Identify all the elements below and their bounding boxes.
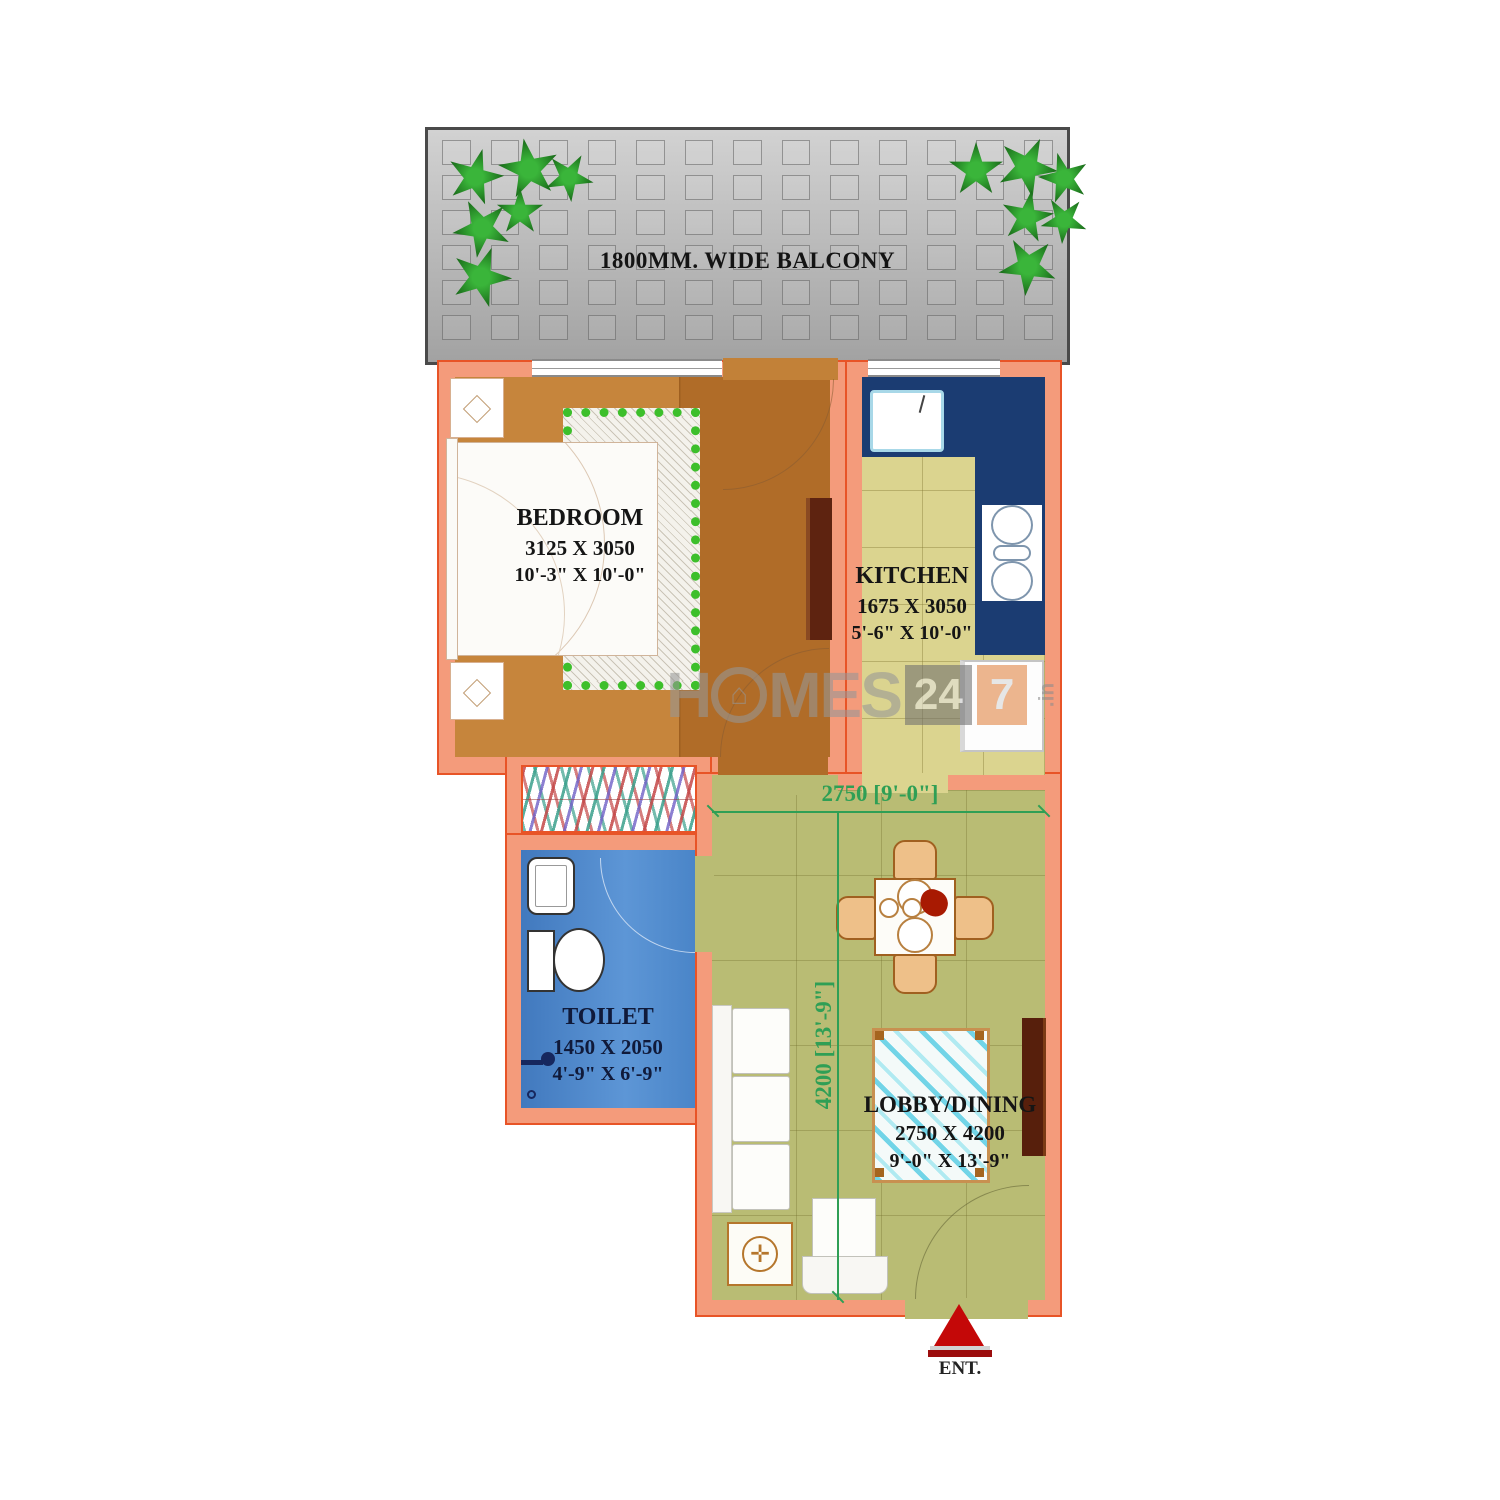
bedroom-label: BEDROOM 3125 X 3050 10'-3" X 10'-0" [480,503,680,589]
balcony-tile [927,140,956,165]
table-bowl [879,898,899,918]
balcony-tile [636,280,665,305]
armchair-seat [812,1198,876,1260]
armchair-base [802,1256,888,1294]
sink-faucet [919,395,926,413]
bedroom-window [532,359,722,377]
place-setting [897,917,933,953]
balcony-tile [636,210,665,235]
kitchen-name: KITCHEN [812,561,1012,593]
compass-decor-icon: ✛ [742,1236,778,1272]
balcony-tile [879,140,908,165]
nightstand-decor [463,679,491,707]
watermark-text: MES [768,658,901,732]
balcony-tile [733,210,762,235]
dining-chair [954,896,994,940]
shower-knob [527,1090,536,1099]
bed-headboard [446,438,458,660]
balcony-tile [927,280,956,305]
balcony-tile [588,280,617,305]
balcony-tile [685,210,714,235]
wardrobe-hanging-clothes [521,765,697,833]
dining-chair [836,896,876,940]
balcony-tile [782,280,811,305]
entrance-arrow-icon [934,1304,984,1346]
watermark-7-badge: 7 [977,665,1027,725]
balcony-tile [685,280,714,305]
kitchen-label: KITCHEN 1675 X 3050 5'-6" X 10'-0" [812,561,1012,647]
balcony-tile [588,140,617,165]
toilet-door-opening [695,856,714,952]
lobby-name: LOBBY/DINING [845,1090,1055,1120]
stove-knob [993,545,1031,560]
watermark: H ⌂ MES 24 7 .in [666,662,1060,728]
balcony-tile [830,140,859,165]
floor-plan: 1800MM. WIDE BALCONY BEDROOM 3125 X 3050 [0,0,1500,1500]
balcony-tile [685,175,714,200]
toilet-size-ft: 4'-9" X 6'-9" [508,1061,708,1087]
balcony-tile [588,315,617,340]
stove-burner [991,505,1033,545]
toilet-name: TOILET [508,1002,708,1034]
balcony-tile [782,175,811,200]
kitchen-window [868,359,1000,377]
balcony-tile [879,315,908,340]
nightstand [450,378,504,438]
balcony-tile [491,140,520,165]
balcony-tile [879,280,908,305]
watermark-24-badge: 24 [905,665,972,725]
kitchen-size-ft: 5'-6" X 10'-0" [812,620,1012,646]
washbasin [527,857,575,915]
rug-corner [875,1031,884,1040]
entrance-bar-dark [928,1350,992,1357]
nightstand-decor [463,395,491,423]
toilet-size-mm: 1450 X 2050 [508,1034,708,1062]
sofa-cushion [732,1076,790,1142]
balcony-tile [685,315,714,340]
balcony-tile [1024,315,1053,340]
dining-chair [893,840,937,880]
balcony-tile [830,280,859,305]
balcony-tile [491,280,520,305]
balcony-door-opening [723,358,838,380]
balcony-tile [976,280,1005,305]
side-table: ✛ [727,1222,793,1286]
balcony-tile [636,140,665,165]
width-dimension-line [712,811,1045,813]
balcony-tile [442,315,471,340]
balcony-tile [588,210,617,235]
kitchen-sink [870,390,944,452]
width-dimension-label: 2750 [9'-0"] [780,781,980,807]
watermark-suffix: .in [1036,683,1060,708]
lobby-size-ft: 9'-0" X 13'-9" [845,1148,1055,1174]
balcony-tile [782,210,811,235]
bedroom-size-mm: 3125 X 3050 [480,535,680,563]
wc-tank [527,930,555,992]
balcony-tile [636,175,665,200]
watermark-text: H [666,658,710,732]
balcony-tile [588,175,617,200]
rug-corner [975,1031,984,1040]
table-bowl [902,898,922,918]
balcony-tile [442,140,471,165]
balcony-tile [927,175,956,200]
lobby-size-mm: 2750 X 4200 [845,1120,1055,1148]
balcony-tile [491,315,520,340]
sofa-back [712,1005,732,1213]
balcony-tile [539,315,568,340]
balcony-tile [976,315,1005,340]
balcony-tile [927,315,956,340]
balcony-tile [879,210,908,235]
sofa-cushion [732,1144,790,1210]
balcony-tile [733,140,762,165]
balcony-tile [830,210,859,235]
balcony-tile [539,280,568,305]
balcony-tile [539,210,568,235]
sofa-cushion [732,1008,790,1074]
balcony-tile [782,315,811,340]
balcony-tile [976,210,1005,235]
bedroom-size-ft: 10'-3" X 10'-0" [480,562,680,588]
nightstand [450,662,504,720]
balcony-label: 1800MM. WIDE BALCONY [428,248,1067,274]
watermark-house-icon: ⌂ [711,667,767,723]
balcony-tile [830,175,859,200]
wc-bowl [553,928,605,992]
balcony-tile [636,315,665,340]
toilet-label: TOILET 1450 X 2050 4'-9" X 6'-9" [508,1002,708,1088]
kitchen-size-mm: 1675 X 3050 [812,593,1012,621]
lobby-label: LOBBY/DINING 2750 X 4200 9'-0" X 13'-9" [845,1090,1055,1174]
balcony-tile [733,315,762,340]
balcony-tile [927,210,956,235]
bedroom-name: BEDROOM [480,503,680,535]
balcony-tile [733,175,762,200]
balcony-tile [685,140,714,165]
height-dimension-label: 4200 [13'-9"] [809,925,839,1165]
balcony-tile [879,175,908,200]
balcony-tile [830,315,859,340]
entrance-label: ENT. [928,1358,992,1380]
balcony-tile [782,140,811,165]
dining-chair [893,954,937,994]
balcony-tile [733,280,762,305]
